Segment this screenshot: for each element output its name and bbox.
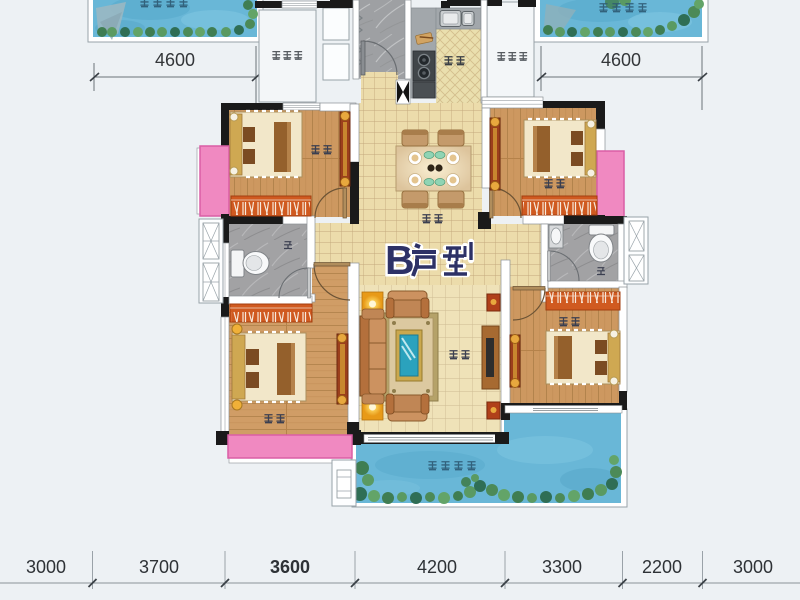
svg-text:3300: 3300 <box>542 557 582 577</box>
svg-text:3000: 3000 <box>26 557 66 577</box>
svg-text:2200: 2200 <box>642 557 682 577</box>
svg-text:4600: 4600 <box>601 50 641 70</box>
svg-text:4200: 4200 <box>417 557 457 577</box>
svg-text:4600: 4600 <box>155 50 195 70</box>
svg-text:3000: 3000 <box>733 557 773 577</box>
svg-text:3700: 3700 <box>139 557 179 577</box>
svg-text:3600: 3600 <box>270 557 310 577</box>
